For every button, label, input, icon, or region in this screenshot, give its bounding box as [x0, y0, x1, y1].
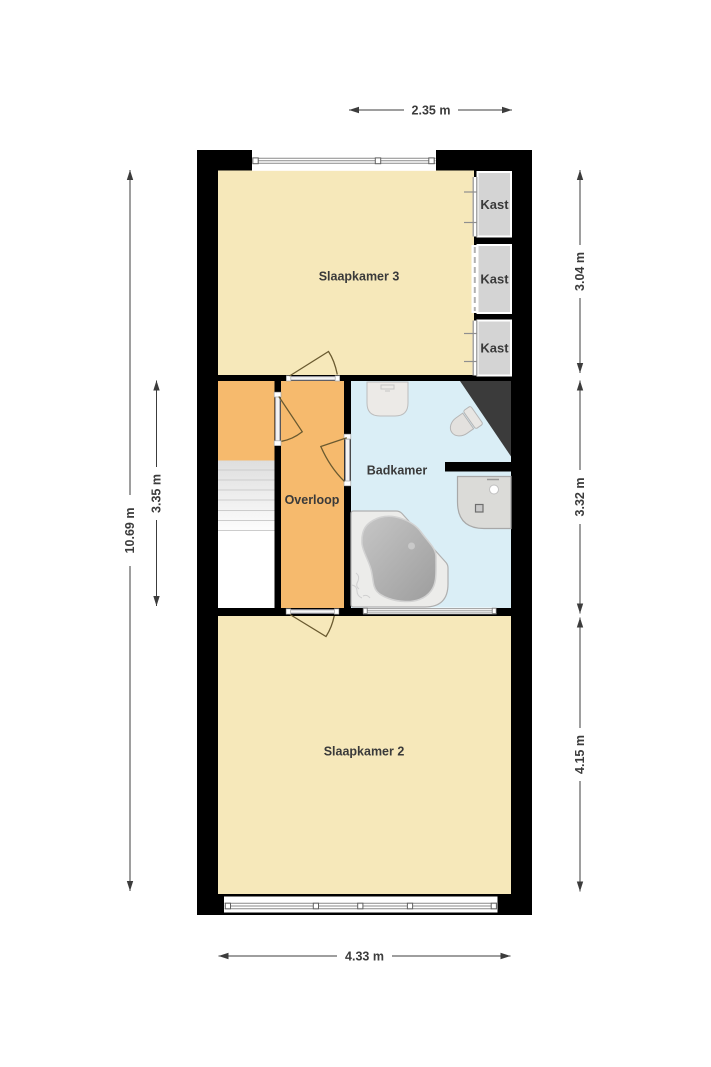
- svg-text:4.33 m: 4.33 m: [345, 950, 384, 964]
- svg-text:4.15 m: 4.15 m: [573, 735, 587, 774]
- svg-text:Kast: Kast: [480, 272, 509, 287]
- svg-text:Kast: Kast: [480, 197, 509, 212]
- svg-text:2.35 m: 2.35 m: [412, 104, 451, 118]
- svg-text:3.04 m: 3.04 m: [573, 252, 587, 291]
- svg-text:Overloop: Overloop: [285, 493, 340, 507]
- svg-text:Badkamer: Badkamer: [367, 464, 428, 478]
- svg-text:3.32 m: 3.32 m: [573, 478, 587, 517]
- svg-text:Slaapkamer 2: Slaapkamer 2: [324, 745, 405, 759]
- svg-text:Kast: Kast: [480, 341, 509, 356]
- svg-text:3.35 m: 3.35 m: [150, 474, 164, 513]
- svg-text:Slaapkamer 3: Slaapkamer 3: [319, 270, 400, 284]
- svg-text:10.69 m: 10.69 m: [123, 508, 137, 554]
